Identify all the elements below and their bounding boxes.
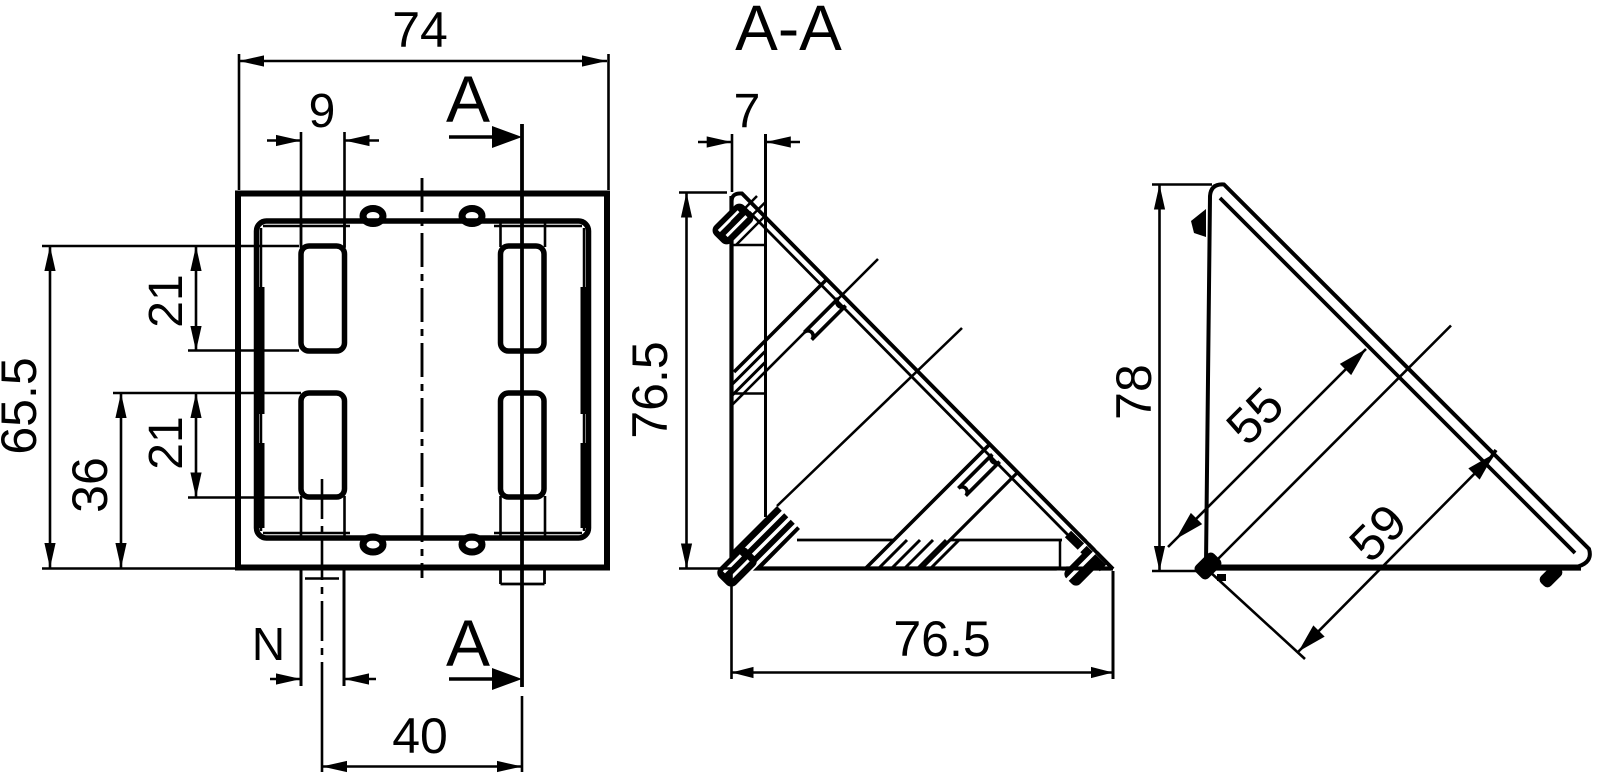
svg-text:78: 78 [1106,364,1162,420]
svg-text:74: 74 [392,2,448,58]
svg-text:A: A [446,606,490,680]
svg-text:7: 7 [734,85,761,138]
svg-text:A: A [446,62,490,136]
svg-text:9: 9 [309,85,336,138]
svg-text:65.5: 65.5 [0,357,47,454]
svg-text:76.5: 76.5 [622,341,678,438]
svg-text:36: 36 [62,457,118,513]
svg-text:21: 21 [140,274,193,327]
svg-text:N: N [252,618,285,670]
svg-text:40: 40 [392,708,448,764]
svg-text:21: 21 [140,416,193,469]
svg-text:76.5: 76.5 [893,611,990,667]
svg-text:A-A: A-A [735,0,842,64]
